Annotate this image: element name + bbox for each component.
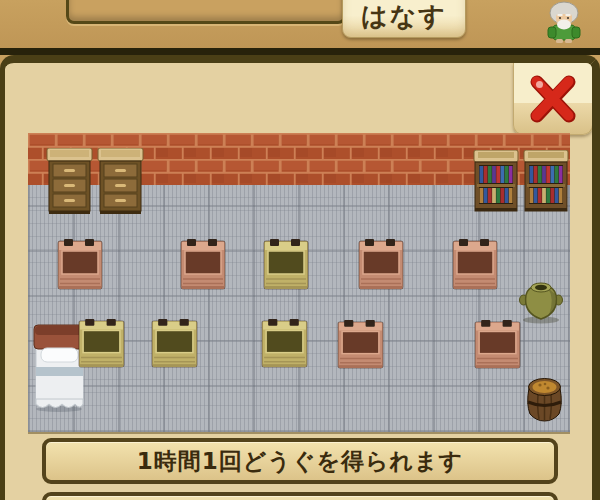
talk-button[interactable]: はなす <box>342 0 466 38</box>
name-plate <box>66 0 346 24</box>
crate-row2-3 <box>261 318 308 368</box>
crate-row1-3 <box>263 238 309 290</box>
reward-info-button[interactable]: 1時間1回どうぐを得られます <box>42 438 558 484</box>
close-button[interactable] <box>513 63 593 135</box>
clay-pot <box>518 279 564 324</box>
stone-tile-floor <box>28 185 570 432</box>
crate-row2-2 <box>151 318 198 368</box>
top-status-bar: はなす <box>0 0 600 55</box>
dresser-1 <box>46 148 93 215</box>
close-x-icon <box>523 73 583 125</box>
secondary-button[interactable] <box>42 492 558 500</box>
crate-row2-4 <box>337 319 384 369</box>
barrel <box>526 376 563 422</box>
crate-row1-5 <box>452 238 498 290</box>
crate-row1-2 <box>180 238 226 290</box>
dresser-2 <box>97 148 144 215</box>
crate-row1-4 <box>358 238 404 290</box>
crate-row1-1 <box>57 238 103 290</box>
crate-row2-5 <box>474 319 521 369</box>
building-dialog-panel: 1時間1回どうぐを得られます <box>0 55 600 500</box>
crate-row2-1 <box>78 318 125 368</box>
npc-elder-icon <box>543 1 585 44</box>
bookshelf-1 <box>473 150 519 213</box>
room-map[interactable] <box>28 133 570 432</box>
bookshelf-2 <box>523 150 569 213</box>
